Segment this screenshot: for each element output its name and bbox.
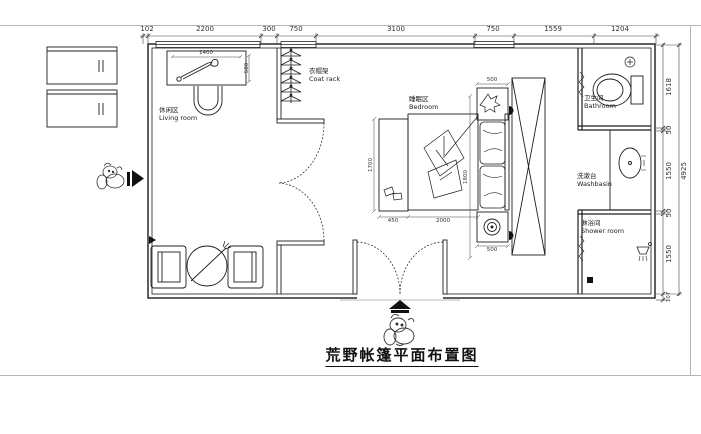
room-label-living-zh: 休闲区 xyxy=(159,106,197,114)
nightstand-bottom xyxy=(477,212,508,242)
room-label-bedroom-en: Bedroom xyxy=(409,103,438,111)
shower-head xyxy=(637,243,652,262)
dim-desk-width: 1400 xyxy=(199,50,213,56)
desk xyxy=(167,51,251,85)
drawing-title: 荒野帐篷平面布置图 xyxy=(325,344,478,367)
dim-nightstand-bottom: 500 xyxy=(487,247,498,253)
bathroom xyxy=(578,48,651,130)
dim-bench-width: 450 xyxy=(388,218,399,224)
room-label-bedroom: 睡眠区 Bedroom xyxy=(409,95,438,112)
dim-top-2200: 2200 xyxy=(196,25,214,33)
room-label-bedroom-zh: 睡眠区 xyxy=(409,95,438,103)
bottom-doodle-figure xyxy=(384,314,414,345)
dim-right-total-4925: 4925 xyxy=(680,162,688,180)
dim-right-107: 107 xyxy=(666,292,672,303)
dim-nightstand-top: 500 xyxy=(487,77,498,83)
room-label-washbasin-zh: 洗漱台 xyxy=(577,172,612,180)
bed-bench xyxy=(379,119,408,211)
room-label-coat-rack: 衣帽架 Coat rack xyxy=(309,67,340,84)
left-entry-arrow xyxy=(127,170,144,187)
room-label-shower-zh: 淋浴间 xyxy=(581,219,624,227)
partition-door xyxy=(277,48,324,294)
dim-top-300: 300 xyxy=(262,25,275,33)
washbasin-counter xyxy=(610,130,646,210)
room-label-living-en: Living room xyxy=(159,114,197,122)
dim-top-750a: 750 xyxy=(289,25,302,33)
dim-top-3100: 3100 xyxy=(387,25,405,33)
dim-top-750b: 750 xyxy=(486,25,499,33)
dim-desk-depth: 500 xyxy=(244,63,250,74)
room-label-living: 休闲区 Living room xyxy=(159,106,197,123)
wall-lamp-top xyxy=(509,106,514,115)
page-border xyxy=(0,26,701,376)
wall-lamp-left xyxy=(149,236,156,244)
dim-top-1204: 1204 xyxy=(611,25,629,33)
dim-top-102: 102 xyxy=(140,25,153,33)
coat-rack xyxy=(281,47,301,103)
dim-right-1550b: 1550 xyxy=(665,245,673,263)
pillows xyxy=(480,122,505,208)
armchair-right xyxy=(228,246,263,288)
dim-right-50a: 50 xyxy=(665,126,673,135)
dim-bed-width: 2000 xyxy=(436,218,450,224)
desk-chair xyxy=(194,86,222,115)
room-label-bathroom: 卫生间 Bathroom xyxy=(584,94,616,111)
dim-right-1618: 1618 xyxy=(665,78,673,96)
room-label-coat-rack-zh: 衣帽架 xyxy=(309,67,340,75)
bedroom-dimension-lines xyxy=(372,82,510,260)
room-label-washbasin-en: Washbasin xyxy=(577,180,612,188)
dim-bed-length: 1800 xyxy=(463,170,469,184)
bottom-entry-arrow xyxy=(389,300,411,313)
left-doodle-figure xyxy=(97,163,124,189)
nightstand-top xyxy=(477,88,508,120)
bed xyxy=(408,114,509,210)
wardrobe xyxy=(512,78,545,255)
room-label-washbasin: 洗漱台 Washbasin xyxy=(577,172,612,189)
wall-lamp-bottom xyxy=(509,231,514,240)
outdoor-benches xyxy=(47,47,117,127)
round-table xyxy=(187,241,231,286)
armchair-left xyxy=(151,246,186,288)
room-label-bathroom-en: Bathroom xyxy=(584,102,616,110)
dim-top-1559: 1559 xyxy=(544,25,562,33)
floor-drain xyxy=(587,277,593,283)
room-label-shower: 淋浴间 Shower room xyxy=(581,219,624,236)
dim-bench-length: 1700 xyxy=(368,158,374,172)
drain-circle xyxy=(625,57,635,67)
room-label-coat-rack-en: Coat rack xyxy=(309,75,340,83)
room-label-shower-en: Shower room xyxy=(581,227,624,235)
floorplan-drawing xyxy=(0,0,701,434)
dim-right-1550a: 1550 xyxy=(665,162,673,180)
floorplan-page: 102 2200 300 750 3100 750 1559 1204 1618… xyxy=(0,0,701,434)
dim-right-50b: 50 xyxy=(665,209,673,218)
room-label-bathroom-zh: 卫生间 xyxy=(584,94,616,102)
